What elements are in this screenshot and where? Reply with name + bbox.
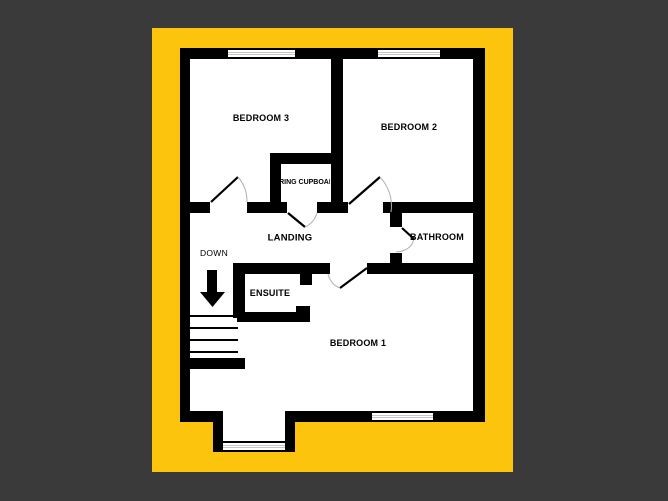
stair-tread xyxy=(190,315,238,317)
bay-floor-area xyxy=(223,400,285,441)
stair-tread xyxy=(190,339,238,341)
room-label-airing-cupboard: AIRING CUPBOARD xyxy=(281,179,330,186)
wall-outer-bottom-left xyxy=(180,411,213,422)
wall-stairs-right xyxy=(233,263,245,318)
stairs-down-label: DOWN xyxy=(200,248,228,258)
room-label-bedroom2: BEDROOM 2 xyxy=(381,122,437,132)
wall-outer-bottom-mid xyxy=(295,411,372,422)
wall-landing-bottom-1 xyxy=(233,263,330,274)
room-label-landing: LANDING xyxy=(268,233,313,244)
wall-bedroom-divider xyxy=(331,48,343,213)
wall-landing-top-3 xyxy=(317,202,348,213)
window-bedroom2 xyxy=(378,48,440,59)
wall-ensuite-door-stub xyxy=(300,274,312,285)
window-bedroom1 xyxy=(372,411,433,422)
wall-stairs-bottom xyxy=(180,358,245,369)
wall-outer-bottom-right xyxy=(433,411,485,422)
wall-landing-top-4 xyxy=(383,202,473,213)
stair-tread xyxy=(190,351,238,353)
wall-ensuite-corner xyxy=(296,306,310,322)
wall-bathroom-left-bottom xyxy=(390,253,402,265)
room-label-bedroom1: BEDROOM 1 xyxy=(330,338,386,348)
wall-bay-left xyxy=(213,411,223,452)
wall-bathroom-left-top xyxy=(390,213,402,227)
wall-bay-right xyxy=(285,411,295,452)
room-label-ensuite: ENSUITE xyxy=(250,288,290,298)
room-label-bathroom: BATHROOM xyxy=(410,232,464,242)
stair-tread xyxy=(190,327,238,329)
window-bedroom3 xyxy=(228,48,295,59)
wall-landing-top-1 xyxy=(190,202,210,213)
wall-outer-right xyxy=(473,48,485,422)
wall-landing-top-2 xyxy=(247,202,287,213)
floorplan-screenshot: BEDROOM 3 BEDROOM 2 AIRING CUPBOARD LAND… xyxy=(0,0,668,501)
room-label-bedroom3: BEDROOM 3 xyxy=(233,113,289,123)
room-label-airing-cupboard-clip: AIRING CUPBOARD xyxy=(281,172,330,192)
window-bay xyxy=(223,441,285,452)
wall-landing-bottom-2 xyxy=(367,263,473,274)
